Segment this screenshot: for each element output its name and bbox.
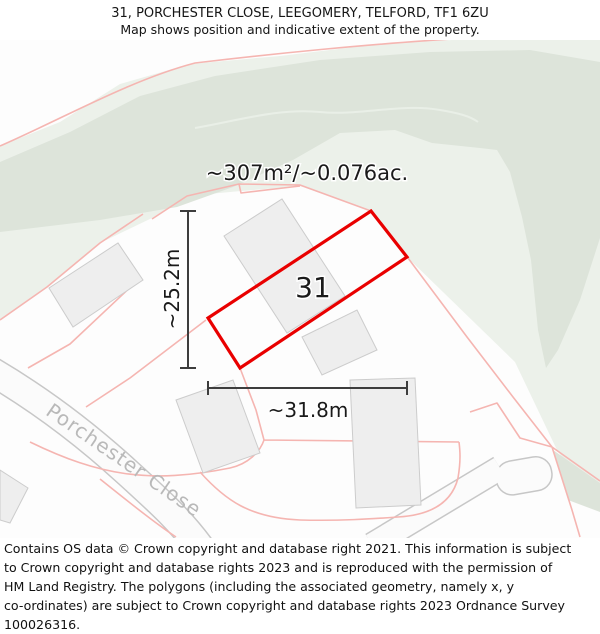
width-dimension-label: ~31.8m [268,398,349,422]
map-canvas: ~307m²/~0.076ac. 31 ~31.8m ~25.2m Porche… [0,40,600,538]
copyright-line: to Crown copyright and database rights 2… [4,558,598,577]
copyright-line: co-ordinates) are subject to Crown copyr… [4,596,598,615]
building [350,378,421,508]
property-address-title: 31, PORCHESTER CLOSE, LEEGOMERY, TELFORD… [0,6,600,22]
height-dimension-label: ~25.2m [160,249,184,330]
copyright-line: HM Land Registry. The polygons (includin… [4,577,598,596]
copyright-notice: Contains OS data © Crown copyright and d… [4,539,598,634]
map-description: Map shows position and indicative extent… [0,22,600,38]
plot-area-label: ~307m²/~0.076ac. [206,161,408,185]
plot-number-label: 31 [295,271,331,304]
property-map: ~307m²/~0.076ac. 31 ~31.8m ~25.2m Porche… [0,40,600,538]
copyright-line: Contains OS data © Crown copyright and d… [4,539,598,558]
